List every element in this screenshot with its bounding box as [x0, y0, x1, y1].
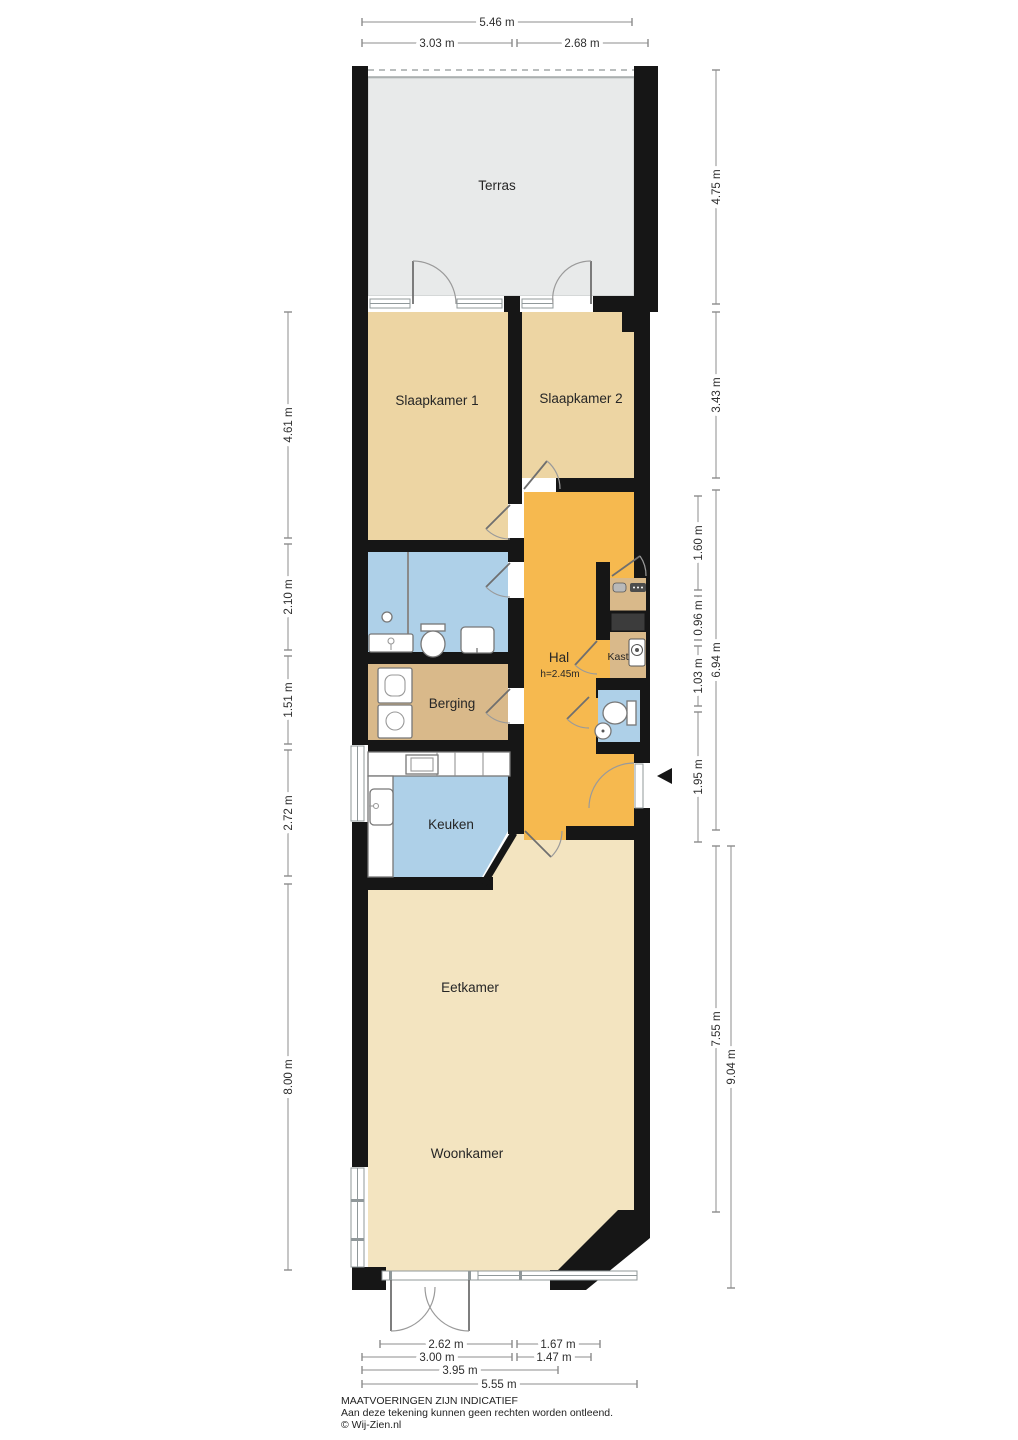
storage-appliances	[378, 668, 412, 738]
dimensions-bottom: 2.62 m 1.67 m 3.00 m 1.47 m 3.95 m 5.55 …	[362, 1339, 637, 1391]
dim-left-bathroom: 2.10 m	[283, 579, 295, 614]
dim-bottom-bay: 3.95 m	[442, 1365, 477, 1377]
dim-left-bedrooms: 4.61 m	[283, 407, 295, 442]
door-sill	[382, 1271, 478, 1280]
dim-bottom-total: 5.55 m	[481, 1379, 516, 1391]
washer-icon	[378, 668, 412, 703]
dim-top-right: 2.68 m	[564, 38, 599, 50]
dim-left-living: 8.00 m	[283, 1059, 295, 1094]
shower-drain-icon	[382, 612, 392, 622]
dimensions-right: 4.75 m 3.43 m 1.60 m 0.96 m 1.03 m 1.95 …	[693, 70, 738, 1288]
french-doors	[391, 1280, 469, 1331]
dim-left-kitchen: 2.72 m	[283, 795, 295, 830]
dim-bottom-doors-outer: 3.00 m	[419, 1352, 454, 1364]
dryer-icon	[378, 705, 412, 738]
dim-right-terrace: 4.75 m	[711, 169, 723, 204]
front-door-panel	[635, 764, 643, 808]
room-label-kast: Kast	[607, 651, 628, 663]
room-label-hal: Hal	[549, 650, 569, 665]
room-woonkamer-eetkamer-floor	[368, 832, 634, 1271]
dim-top-total: 5.46 m	[479, 17, 514, 29]
room-label-hal-height: h=2.45m	[540, 669, 579, 680]
room-label-eetkamer: Eetkamer	[441, 980, 499, 995]
room-label-slaapkamer2: Slaapkamer 2	[539, 391, 622, 406]
dim-bottom-window-outer: 1.47 m	[536, 1352, 571, 1364]
dim-right-living: 7.55 m	[711, 1011, 723, 1046]
dimensions-left: 4.61 m 2.10 m 1.51 m 2.72 m 8.00 m	[283, 312, 295, 1270]
room-label-keuken: Keuken	[428, 817, 474, 832]
toilet-icon	[603, 702, 627, 724]
floor-plan-svg: Terras Slaapkamer 1 Slaapkamer 2 Hal h=2…	[0, 0, 1018, 1440]
dim-right-meter: 0.96 m	[693, 600, 705, 635]
room-label-slaapkamer1: Slaapkamer 1	[395, 393, 478, 408]
room-label-berging: Berging	[429, 696, 476, 711]
toilet-icon	[421, 631, 445, 657]
room-label-woonkamer: Woonkamer	[431, 1146, 504, 1161]
floor-plan-page: Terras Slaapkamer 1 Slaapkamer 2 Hal h=2…	[0, 0, 1018, 1440]
dimensions-top: 5.46 m 3.03 m 2.68 m	[362, 17, 648, 50]
dim-right-living-total: 9.04 m	[726, 1049, 738, 1084]
terrace-railing	[368, 70, 634, 77]
room-slaapkamer1-floor	[368, 312, 508, 540]
dim-right-entry: 1.95 m	[693, 759, 705, 794]
meter-icon	[613, 583, 626, 592]
dim-top-left: 3.03 m	[419, 38, 454, 50]
footer-line1: MAATVOERINGEN ZIJN INDICATIEF	[341, 1395, 518, 1407]
shaft	[610, 612, 646, 632]
dim-right-closet: 1.03 m	[693, 658, 705, 693]
room-label-terras: Terras	[478, 178, 516, 193]
dim-left-storage: 1.51 m	[283, 682, 295, 717]
dim-bottom-window: 1.67 m	[540, 1339, 575, 1351]
entrance-arrow-icon	[657, 768, 672, 784]
footer-disclaimer: MAATVOERINGEN ZIJN INDICATIEF Aan deze t…	[341, 1395, 613, 1431]
footer-line2: Aan deze tekening kunnen geen rechten wo…	[341, 1407, 613, 1419]
dim-right-hall-upper: 1.60 m	[693, 525, 705, 560]
dim-right-hall-total: 6.94 m	[711, 642, 723, 677]
dim-right-bedrooms: 3.43 m	[711, 377, 723, 412]
toilet-tank-icon	[421, 624, 445, 631]
footer-line3: © Wij-Zien.nl	[341, 1419, 401, 1431]
toilet-tank-icon	[627, 701, 636, 725]
dim-bottom-doors: 2.62 m	[428, 1339, 463, 1351]
